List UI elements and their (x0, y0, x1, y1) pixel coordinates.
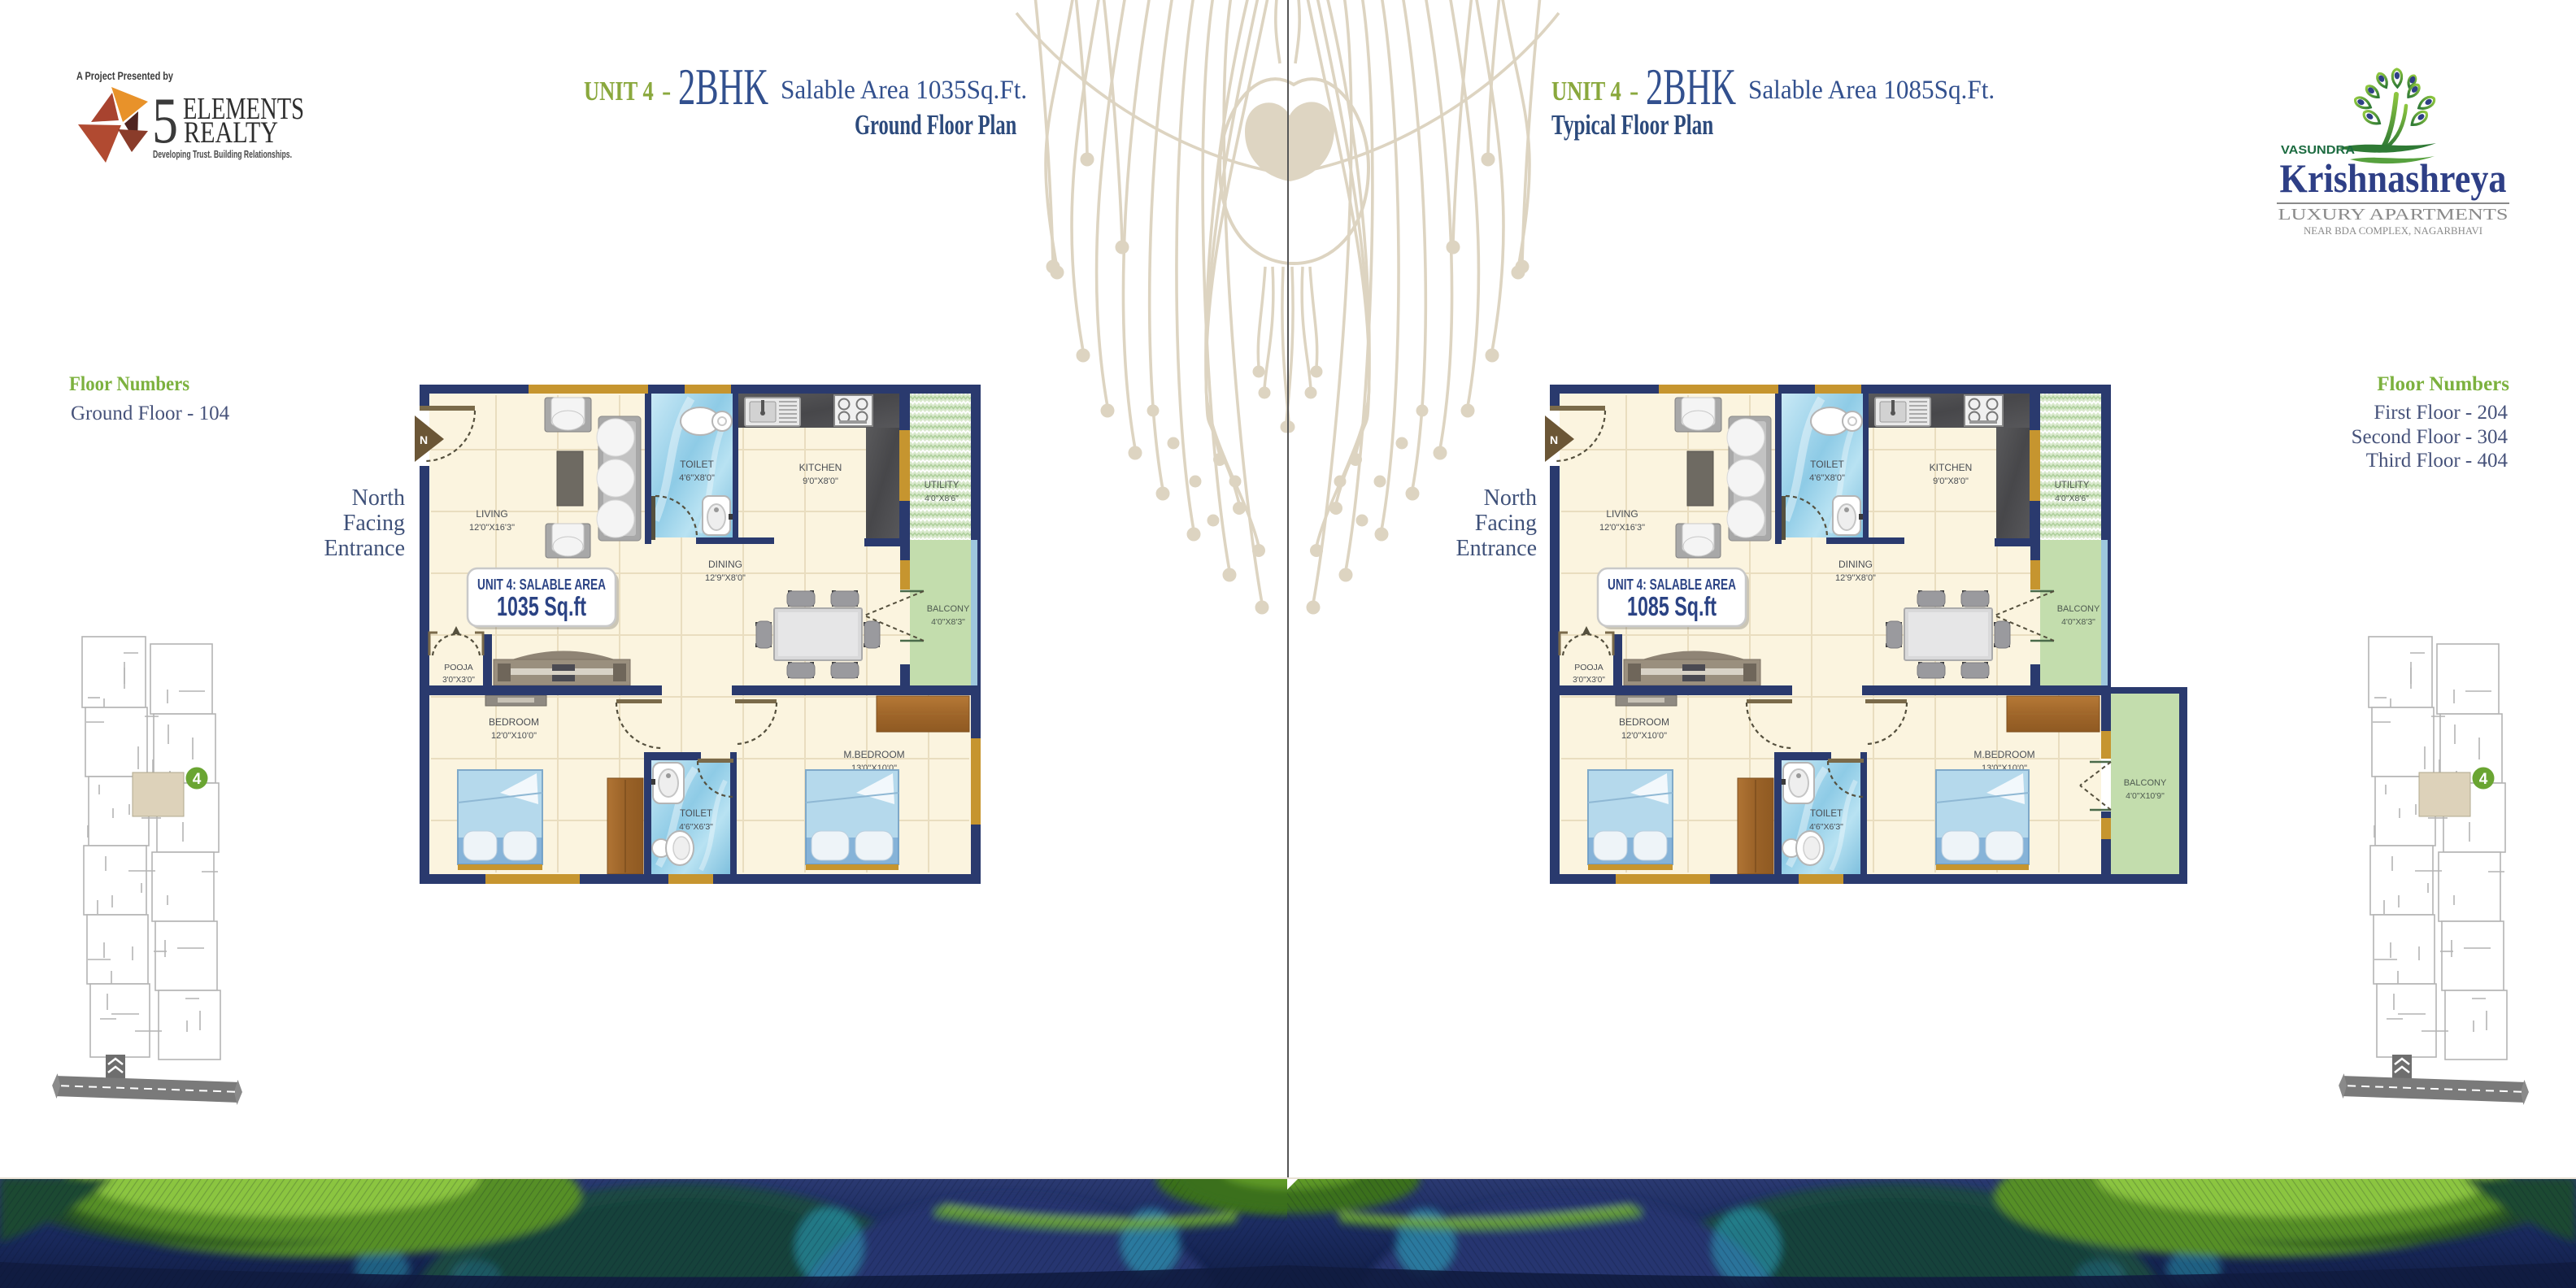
svg-text:UNIT 4: SALABLE AREA: UNIT 4: SALABLE AREA (1608, 576, 1736, 593)
svg-text:4'0"X8'6": 4'0"X8'6" (2055, 494, 2089, 503)
svg-text:3'0"X3'0": 3'0"X3'0" (1573, 676, 1605, 685)
svg-text:12'9"X8'0": 12'9"X8'0" (705, 573, 746, 583)
svg-text:BEDROOM: BEDROOM (489, 716, 539, 728)
svg-text:4'6"X6'3": 4'6"X6'3" (1809, 822, 1843, 832)
svg-text:4'6"X6'3": 4'6"X6'3" (679, 822, 713, 832)
svg-text:12'0"X10'0": 12'0"X10'0" (491, 731, 537, 741)
svg-text:12'9"X8'0": 12'9"X8'0" (1835, 573, 1876, 583)
svg-text:4'6"X8'0": 4'6"X8'0" (1809, 473, 1845, 483)
svg-text:12'0"X10'0": 12'0"X10'0" (1621, 731, 1667, 741)
svg-text:TOILET: TOILET (1810, 459, 1844, 470)
svg-text:LIVING: LIVING (476, 508, 507, 520)
svg-text:4'0"X8'3": 4'0"X8'3" (931, 617, 965, 627)
svg-text:BALCONY: BALCONY (2124, 778, 2167, 788)
svg-text:4'0"X8'3": 4'0"X8'3" (2061, 617, 2095, 627)
svg-text:3'0"X3'0": 3'0"X3'0" (442, 676, 475, 685)
svg-text:4'0"X10'9": 4'0"X10'9" (2126, 791, 2165, 801)
svg-text:9'0"X8'0": 9'0"X8'0" (1933, 476, 1969, 486)
svg-text:BALCONY: BALCONY (927, 604, 970, 614)
svg-text:M.BEDROOM: M.BEDROOM (843, 749, 904, 760)
svg-text:KITCHEN: KITCHEN (1930, 462, 1973, 473)
svg-text:4'0"X8'6": 4'0"X8'6" (925, 494, 959, 503)
svg-text:1085 Sq.ft: 1085 Sq.ft (1627, 591, 1717, 621)
svg-text:12'0"X16'3": 12'0"X16'3" (1599, 523, 1645, 533)
svg-text:Developing Trust. Building Rel: Developing Trust. Building Relationships… (153, 148, 292, 160)
svg-text:KITCHEN: KITCHEN (799, 462, 842, 473)
svg-text:5: 5 (152, 84, 178, 157)
svg-text:4: 4 (193, 771, 202, 788)
svg-text:Krishnashreya: Krishnashreya (2280, 155, 2507, 201)
svg-text:NEAR BDA COMPLEX, NAGARBHAVI: NEAR BDA COMPLEX, NAGARBHAVI (2304, 224, 2482, 237)
svg-text:N: N (1550, 433, 1558, 446)
svg-text:4: 4 (2479, 771, 2488, 788)
svg-text:DINING: DINING (1838, 559, 1873, 570)
svg-text:UTILITY: UTILITY (2055, 481, 2090, 490)
svg-text:A Project Presented by: A Project Presented by (76, 70, 173, 82)
svg-text:N: N (420, 433, 428, 446)
svg-text:BEDROOM: BEDROOM (1619, 716, 1669, 728)
svg-text:REALTY: REALTY (184, 116, 278, 150)
svg-text:4'6"X8'0": 4'6"X8'0" (679, 473, 715, 483)
svg-text:TOILET: TOILET (680, 809, 712, 819)
svg-text:12'0"X16'3": 12'0"X16'3" (469, 523, 515, 533)
svg-text:TOILET: TOILET (680, 459, 714, 470)
svg-text:POOJA: POOJA (444, 663, 473, 672)
svg-text:DINING: DINING (708, 559, 742, 570)
svg-text:BALCONY: BALCONY (2057, 604, 2100, 614)
svg-text:LIVING: LIVING (1606, 508, 1638, 520)
svg-text:TOILET: TOILET (1810, 809, 1843, 819)
svg-text:LUXURY APARTMENTS: LUXURY APARTMENTS (2278, 206, 2509, 224)
svg-text:POOJA: POOJA (1574, 663, 1603, 672)
svg-text:9'0"X8'0": 9'0"X8'0" (803, 476, 838, 486)
svg-text:UNIT 4: SALABLE AREA: UNIT 4: SALABLE AREA (477, 576, 606, 593)
svg-text:1035 Sq.ft: 1035 Sq.ft (497, 591, 586, 621)
svg-text:M.BEDROOM: M.BEDROOM (1973, 749, 2034, 760)
svg-text:UTILITY: UTILITY (925, 481, 959, 490)
